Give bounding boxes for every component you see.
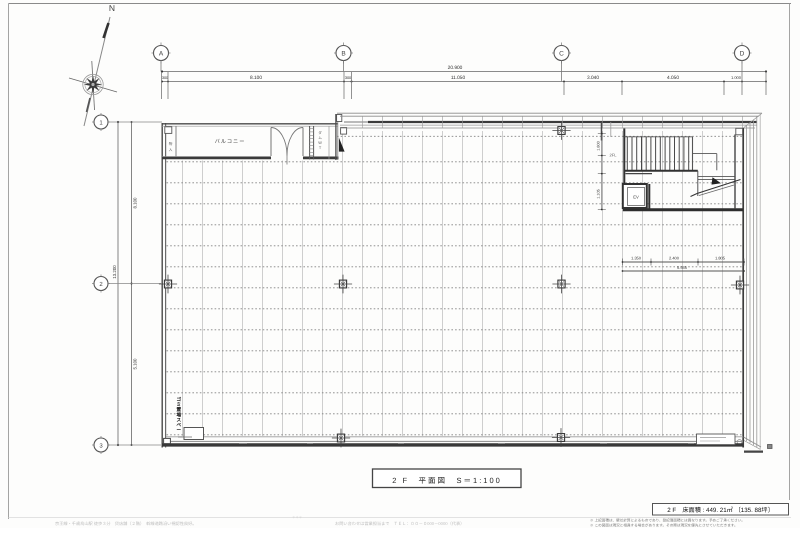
svg-text:4.050: 4.050 [667,75,679,81]
svg-text:8.100: 8.100 [250,75,262,81]
svg-text:バルコニー: バルコニー [215,138,246,145]
svg-text:300: 300 [345,76,351,80]
svg-text:※ この図面は現況と相違する場合があります。その際は現況を優: ※ この図面は現況と相違する場合があります。その際は現況を優先とさせていただきま… [590,523,738,528]
svg-text:B: B [341,51,345,58]
svg-text:2.400: 2.400 [669,256,680,261]
svg-text:※ 上記面積は、壁芯計算によるものであり、登記簿面積とは異な: ※ 上記面積は、壁芯計算によるものであり、登記簿面積とは異なります。予めご了承く… [590,518,745,523]
svg-text:場: 場 [176,411,181,418]
svg-text:1.350: 1.350 [631,256,642,261]
svg-text:8.100: 8.100 [133,197,138,209]
svg-text:京王線・千歳烏山駅 徒歩３分 貸店舗（２階） 幹線道路沿い視: 京王線・千歳烏山駅 徒歩３分 貸店舗（２階） 幹線道路沿い視認性良好。 [55,521,196,526]
svg-text:1.000: 1.000 [731,75,742,80]
svg-text:D: D [740,51,745,58]
svg-text:お問い合わせは営業担当まで ＴＥＬ：００－０000－0000: お問い合わせは営業担当まで ＴＥＬ：００－０000－0000（代表） [335,521,464,526]
svg-text:ゴ: ゴ [176,396,181,403]
svg-text:N: N [109,3,115,13]
svg-text:EV: EV [633,195,639,200]
svg-text:＊＊＊: ＊＊＊ [292,516,302,520]
svg-text:ペ: ペ [176,423,181,429]
svg-text:置: 置 [176,407,181,413]
svg-text:入: 入 [169,148,173,152]
svg-text:1.800: 1.800 [596,141,600,151]
svg-text:物: 物 [169,141,173,146]
svg-text:20.900: 20.900 [448,65,463,71]
svg-text:ミ: ミ [176,402,181,408]
svg-text:1.805: 1.805 [715,256,726,261]
svg-text:ス: ス [176,417,181,423]
svg-text:ム: ム [318,136,322,140]
svg-text:A: A [159,51,164,58]
svg-text:C: C [559,51,564,58]
svg-text:300: 300 [162,76,168,80]
svg-text:5.100: 5.100 [133,358,138,370]
svg-text:ダ: ダ [318,130,322,135]
svg-text:5.555: 5.555 [677,265,688,270]
svg-text:ー: ー [176,429,181,434]
svg-text:3.040: 3.040 [587,75,599,81]
svg-text:2 F 床面積 : 449. 21㎡ 〔135. 88坪〕: 2 F 床面積 : 449. 21㎡ 〔135. 88坪〕 [667,506,774,514]
svg-text:2 F 平面図 S＝1:100: 2 F 平面図 S＝1:100 [392,476,502,485]
svg-text:Ｗ: Ｗ [318,141,322,145]
svg-text:1.105: 1.105 [596,189,600,199]
svg-text:11.050: 11.050 [451,75,466,81]
svg-text:2FL: 2FL [610,153,618,158]
svg-text:13.200: 13.200 [112,265,117,279]
svg-text:Ｔ: Ｔ [318,146,322,150]
